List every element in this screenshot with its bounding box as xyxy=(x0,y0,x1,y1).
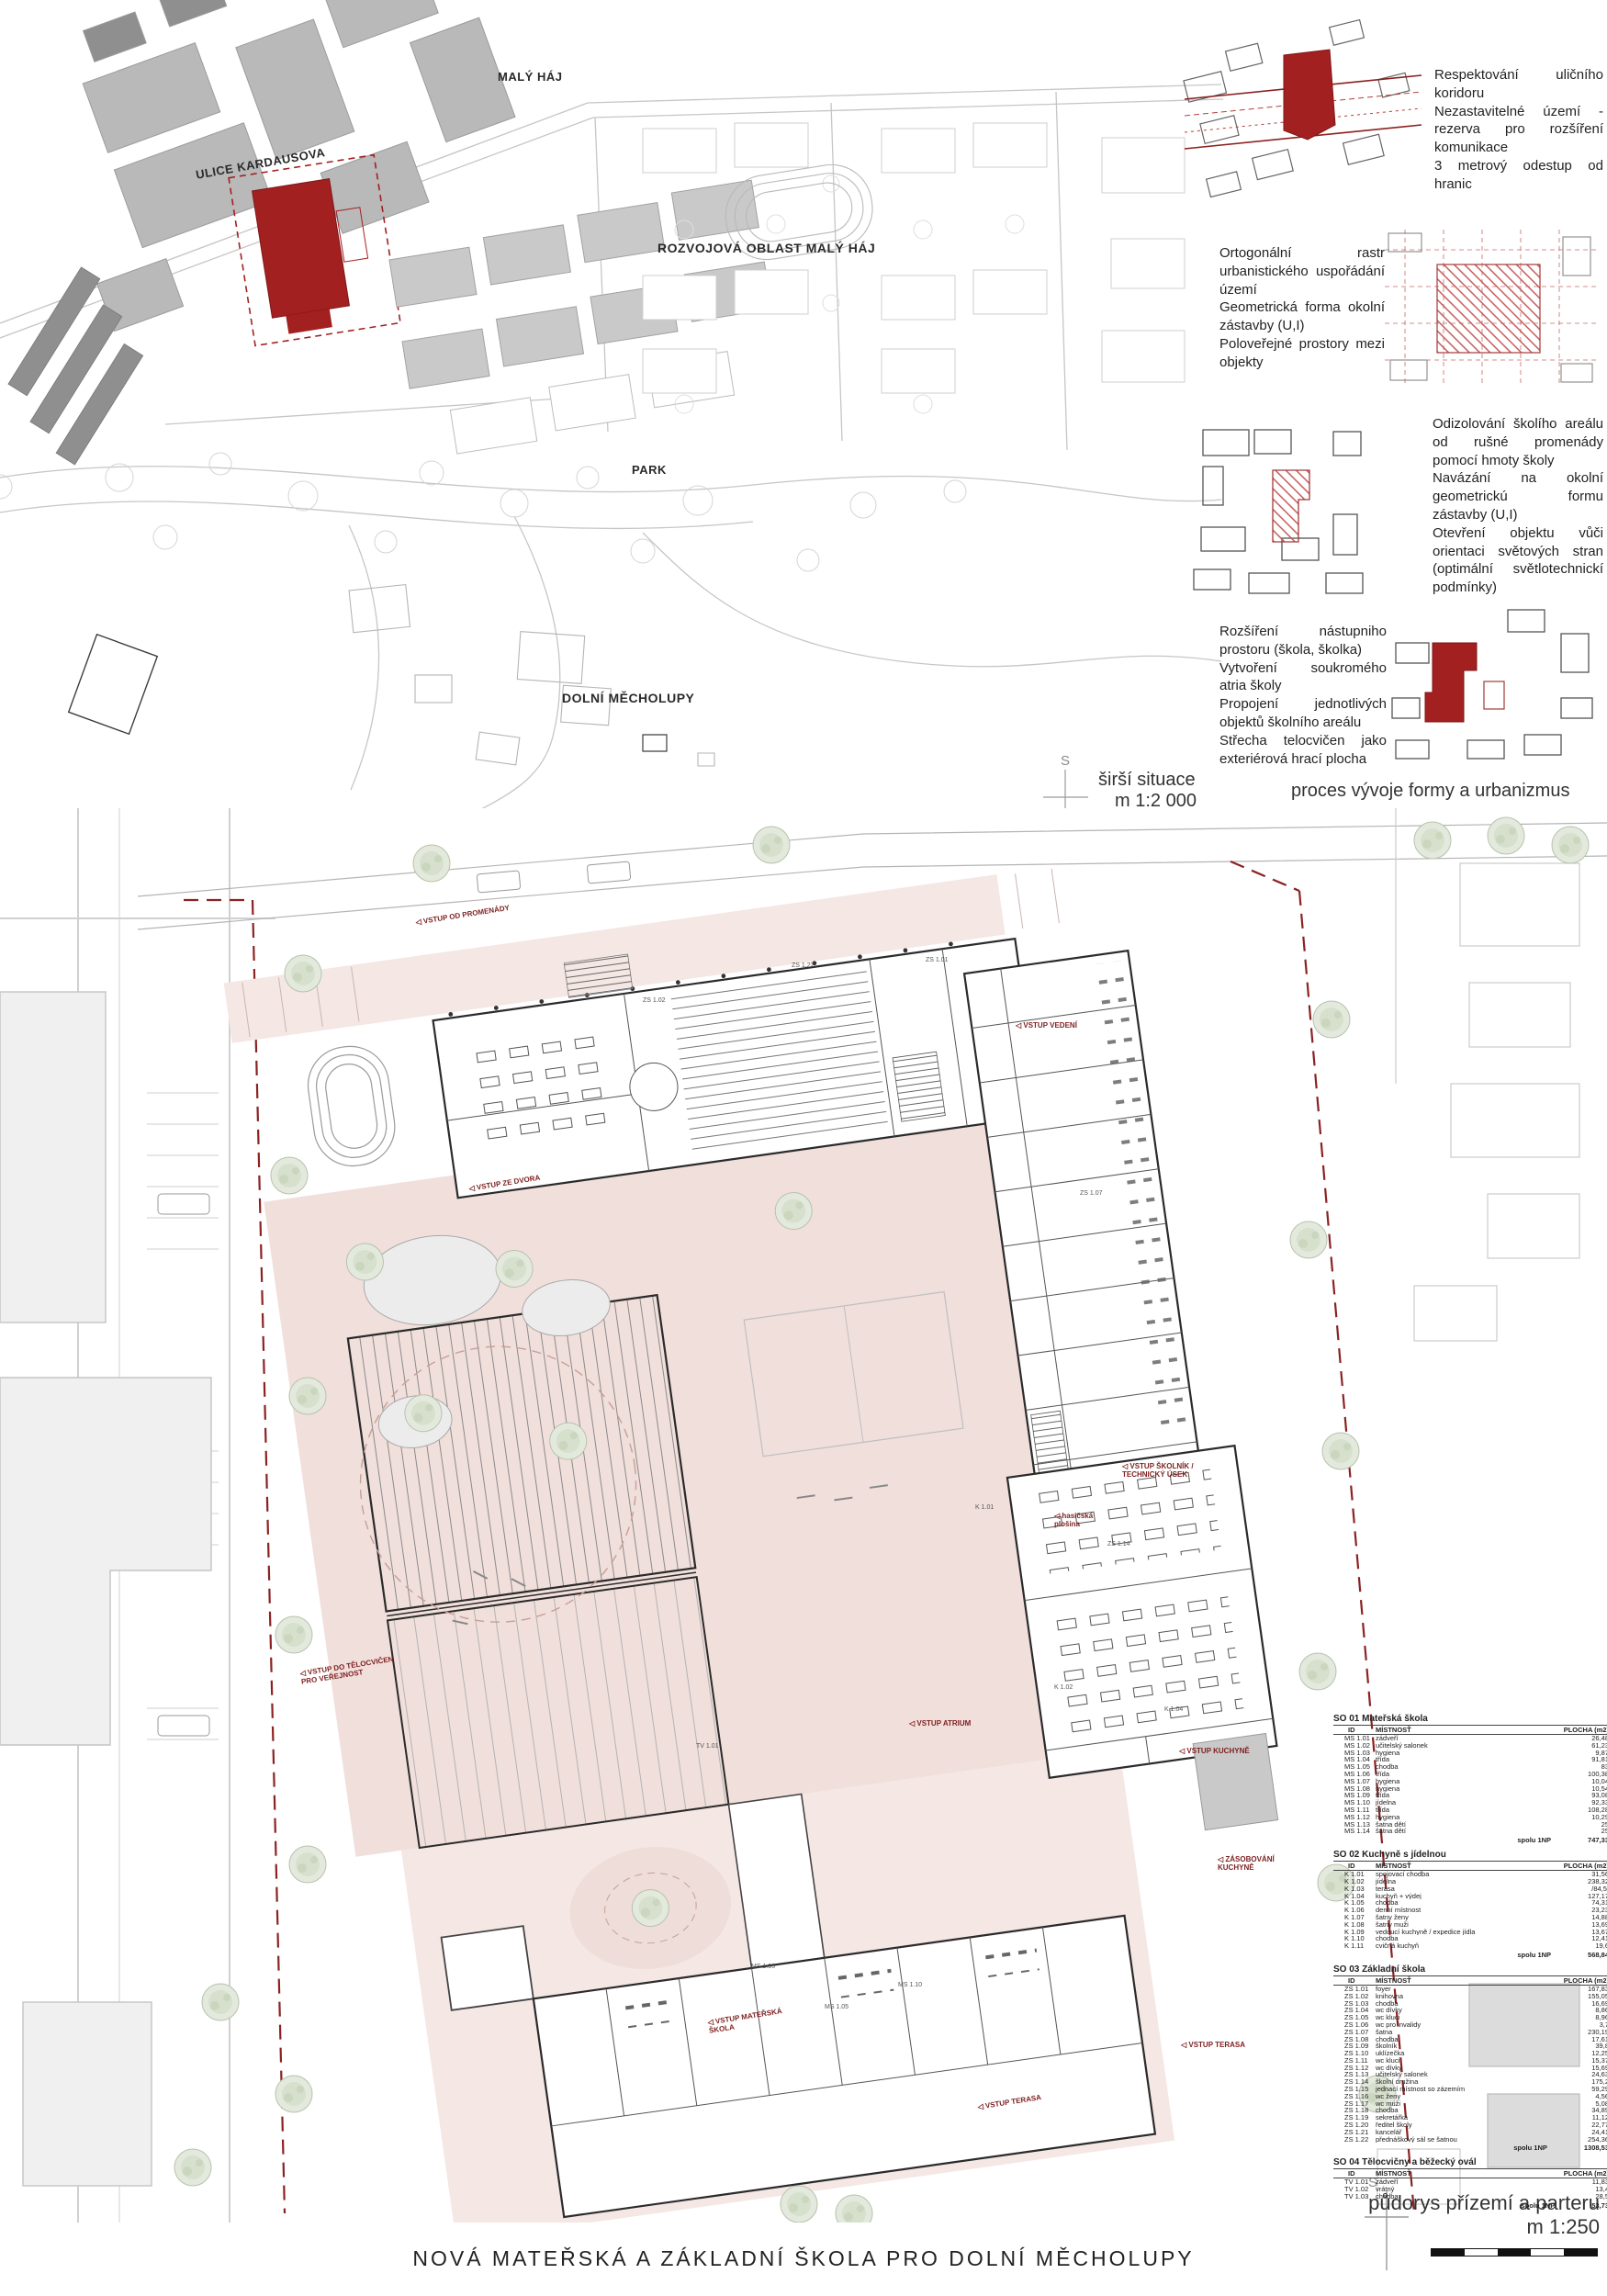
table-title: SO 02 Kuchyně s jídelnou xyxy=(1333,1850,1607,1860)
table-row: ZS 1.10uklízečka12,25 xyxy=(1333,2050,1607,2057)
table-row: K 1.06denní místnost23,23 xyxy=(1333,1907,1607,1914)
room-tables: SO 01 Mateřská školaIDMÍSTNOSŤPLOCHA (m2… xyxy=(1333,1714,1607,2215)
table-row: K 1.02jídelna238,32 xyxy=(1333,1878,1607,1885)
label-maly-haj: MALÝ HÁJ xyxy=(498,70,562,84)
north-label-site: S xyxy=(1061,753,1070,769)
table-row: MS 1.01zádveří26,48 xyxy=(1333,1735,1607,1742)
table-row: MS 1.14šatna dětí25 xyxy=(1333,1828,1607,1835)
process-diagram-2 xyxy=(1385,230,1600,386)
room-table: SO 01 Mateřská školaIDMÍSTNOSŤPLOCHA (m2… xyxy=(1333,1714,1607,1844)
table-row: ZS 1.01foyer167,83 xyxy=(1333,1986,1607,1993)
room-table: SO 03 Základní školaIDMÍSTNOSŤPLOCHA (m2… xyxy=(1333,1964,1607,2153)
table-row: ZS 1.04wc dívky8,86 xyxy=(1333,2007,1607,2014)
room-code-label: ZS 1.22 xyxy=(792,962,815,969)
site-caption-line1: širší situace xyxy=(1098,770,1196,790)
table-row: ZS 1.19sekretářka11,12 xyxy=(1333,2114,1607,2122)
room-code-label: ZS 1.07 xyxy=(1080,1190,1103,1197)
process-step-4-text: Rozšíření nástupniho prostoru (škola, šk… xyxy=(1219,623,1387,768)
table-row: ZS 1.12wc dívky15,69 xyxy=(1333,2065,1607,2072)
room-code-label: ZS 1.02 xyxy=(643,997,666,1004)
table-row: ZS 1.06wc pro invalidy3,7 xyxy=(1333,2021,1607,2029)
table-row: TV 1.02vrátný13,4 xyxy=(1333,2186,1607,2193)
table-row: MS 1.10jídelna92,33 xyxy=(1333,1799,1607,1806)
table-row: MS 1.09třída93,08 xyxy=(1333,1792,1607,1799)
table-total: spolu 1NP747,33 xyxy=(1333,1836,1607,1844)
table-header: IDMÍSTNOSŤPLOCHA (m2) xyxy=(1333,1725,1607,1735)
table-row: K 1.03terasa/84,5/ xyxy=(1333,1885,1607,1893)
table-row: ZS 1.08chodba17,61 xyxy=(1333,2036,1607,2043)
table-row: TV 1.01zádveří11,83 xyxy=(1333,2178,1607,2186)
process-diagram-4 xyxy=(1392,610,1592,759)
table-row: K 1.10chodba12,41 xyxy=(1333,1935,1607,1942)
entrance-label: ◁ VSTUP ATRIUM xyxy=(909,1719,971,1728)
table-row: ZS 1.21kancelář24,41 xyxy=(1333,2129,1607,2136)
table-header: IDMÍSTNOSŤPLOCHA (m2) xyxy=(1333,1975,1607,1986)
north-arrow-site xyxy=(1043,770,1088,808)
table-row: ZS 1.11wc kluci15,37 xyxy=(1333,2057,1607,2065)
table-row: MS 1.02učitelský salonek61,23 xyxy=(1333,1742,1607,1750)
running-oval xyxy=(303,1041,399,1171)
table-row: K 1.04kuchyň + výdej127,17 xyxy=(1333,1893,1607,1900)
label-dolni-mecholupy: DOLNÍ MĚCHOLUPY xyxy=(562,691,694,705)
label-rozvojova-oblast: ROZVOJOVÁ OBLAST MALÝ HÁJ xyxy=(657,241,875,255)
table-total: spolu 1NP568,84 xyxy=(1333,1951,1607,1959)
room-code-label: ZS 1.01 xyxy=(926,957,949,963)
site-plan-caption: širší situace m 1:2 000 xyxy=(1098,770,1227,812)
process-diagram-1 xyxy=(1177,10,1423,198)
table-row: MS 1.13šatna dětí25 xyxy=(1333,1821,1607,1829)
table-row: MS 1.03hygiena9,87 xyxy=(1333,1750,1607,1757)
entrance-label: ◁ VSTUP VEDENÍ xyxy=(1016,1021,1077,1030)
table-row: ZS 1.18chodba34,89 xyxy=(1333,2107,1607,2114)
table-title: SO 04 Tělocvičny a běžecký ovál xyxy=(1333,2157,1607,2167)
table-row: K 1.05chodba74,31 xyxy=(1333,1899,1607,1907)
table-title: SO 01 Mateřská škola xyxy=(1333,1714,1607,1724)
table-row: K 1.08šatny muži13,69 xyxy=(1333,1921,1607,1929)
process-step-2-text: Ortogonální rastr urbanistického uspořád… xyxy=(1219,244,1385,372)
process-caption: proces vývoje formy a urbanizmus xyxy=(1291,781,1569,802)
table-row: TV 1.03chodba28,5 xyxy=(1333,2193,1607,2200)
room-code-label: K 1.02 xyxy=(1054,1684,1073,1691)
room-code-label: MS 1.05 xyxy=(825,2004,848,2010)
table-row: ZS 1.20ředitel školy22,77 xyxy=(1333,2122,1607,2129)
table-row: K 1.07šatny ženy14,88 xyxy=(1333,1914,1607,1921)
room-code-label: K 1.04 xyxy=(1164,1706,1183,1713)
table-row: ZS 1.17wc muži5,08 xyxy=(1333,2100,1607,2108)
table-row: ZS 1.02knihovna155,05 xyxy=(1333,1993,1607,2000)
process-step-3-text: Odizolování školího areálu od rušné prom… xyxy=(1433,415,1603,597)
table-row: ZS 1.05wc kluci8,96 xyxy=(1333,2014,1607,2021)
page-title: NOVÁ MATEŘSKÁ A ZÁKLADNÍ ŠKOLA PRO DOLNÍ… xyxy=(0,2246,1607,2271)
room-code-label: ZS 1.14 xyxy=(1107,1541,1130,1548)
table-header: IDMÍSTNOSŤPLOCHA (m2) xyxy=(1333,1861,1607,1871)
table-row: K 1.09vedoucí kuchyně / expedice jídla13… xyxy=(1333,1929,1607,1936)
table-row: MS 1.08hygiena10,54 xyxy=(1333,1785,1607,1793)
process-step-1-text: Respektování uličního koridoru Nezastavi… xyxy=(1434,66,1603,194)
table-row: MS 1.07hygiena10,04 xyxy=(1333,1778,1607,1785)
room-table: SO 04 Tělocvičny a běžecký oválIDMÍSTNOS… xyxy=(1333,2157,1607,2209)
entrance-label: ◁ VSTUP KUCHYNĚ xyxy=(1179,1747,1250,1755)
table-row: ZS 1.22přednáškový sál se šatnou254,36 xyxy=(1333,2136,1607,2144)
table-row: ZS 1.07šatna230,19 xyxy=(1333,2029,1607,2036)
competition-board: { "board": { "title": "NOVÁ MATEŘSKÁ A Z… xyxy=(0,0,1607,2296)
entrance-label: ◁ VSTUP TERASA xyxy=(1181,2041,1245,2049)
table-row: MS 1.05chodba83 xyxy=(1333,1763,1607,1771)
table-row: K 1.11cvičná kuchyň19,6 xyxy=(1333,1942,1607,1950)
table-row: ZS 1.09školník39,8 xyxy=(1333,2043,1607,2050)
table-row: MS 1.12hygiena10,29 xyxy=(1333,1814,1607,1821)
table-row: ZS 1.03chodba16,69 xyxy=(1333,2000,1607,2008)
room-code-label: K 1.01 xyxy=(975,1504,994,1511)
table-total: spolu 1NP1308,53 xyxy=(1333,2144,1607,2152)
entrance-label: ◁ hasičská plošina xyxy=(1054,1512,1093,1528)
table-row: ZS 1.16wc ženy4,56 xyxy=(1333,2093,1607,2100)
entrance-label: ◁ VSTUP ŠKOLNÍK / TECHNICKÝ ÚSEK xyxy=(1122,1462,1194,1479)
table-header: IDMÍSTNOSŤPLOCHA (m2) xyxy=(1333,2168,1607,2178)
table-title: SO 03 Základní škola xyxy=(1333,1964,1607,1975)
room-code-label: TV 1.01 xyxy=(696,1743,719,1750)
table-row: MS 1.06třída100,38 xyxy=(1333,1771,1607,1778)
process-diagram-3 xyxy=(1194,430,1363,593)
entrance-label: ◁ ZÁSOBOVÁNÍ KUCHYNĚ xyxy=(1218,1855,1275,1872)
table-row: K 1.01spojovací chodba31,56 xyxy=(1333,1871,1607,1878)
table-row: MS 1.11třída108,28 xyxy=(1333,1806,1607,1814)
table-total: spolu 1NP53,73 xyxy=(1333,2201,1607,2210)
table-row: ZS 1.15jednací místnost so zázemím59,29 xyxy=(1333,2086,1607,2093)
room-code-label: MS 1.06 xyxy=(751,1964,775,1970)
room-table: SO 02 Kuchyně s jídelnouIDMÍSTNOSŤPLOCHA… xyxy=(1333,1850,1607,1959)
table-row: MS 1.04třída91,81 xyxy=(1333,1756,1607,1763)
table-row: ZS 1.13učitelský salonek24,63 xyxy=(1333,2071,1607,2078)
room-code-label: MS 1.10 xyxy=(898,1982,922,1988)
label-park: PARK xyxy=(632,463,667,477)
table-row: ZS 1.14školní družina175,2 xyxy=(1333,2078,1607,2086)
plan-caption-line2: m 1:250 xyxy=(1368,2215,1600,2239)
